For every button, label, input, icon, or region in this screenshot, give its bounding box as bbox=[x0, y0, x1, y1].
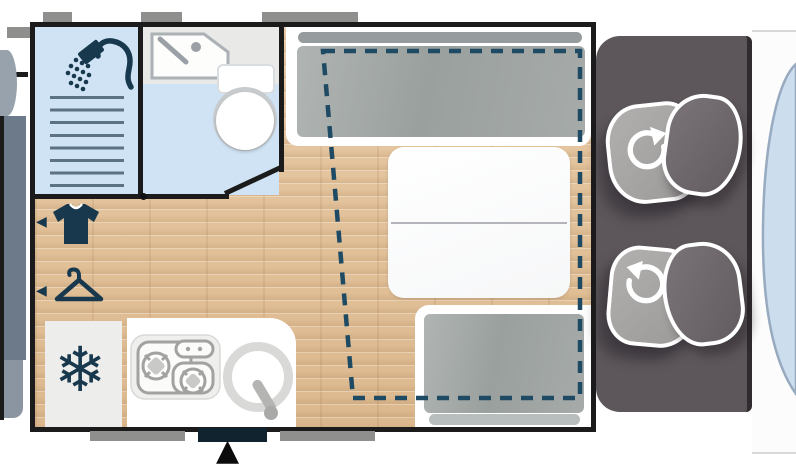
windshield bbox=[752, 30, 796, 450]
rear-bench-footer bbox=[429, 414, 580, 425]
shower-icon bbox=[58, 32, 138, 102]
window-tab bbox=[280, 431, 375, 441]
entry-arrow-icon: ▲ bbox=[216, 436, 239, 466]
adjacent-window-tab bbox=[7, 27, 30, 38]
rear-bench-cushion bbox=[424, 314, 584, 413]
adjacent-bed-foot bbox=[4, 360, 23, 418]
wardrobe-arrow-icon: ◀ bbox=[36, 284, 47, 298]
snowflake-icon: ❄ bbox=[54, 336, 106, 404]
window-tab bbox=[90, 431, 185, 441]
bathroom-door-pivot bbox=[140, 193, 147, 200]
front-bench-headrest bbox=[298, 32, 582, 43]
hanger-icon bbox=[54, 266, 104, 306]
cab bbox=[596, 36, 752, 412]
adjacent-bed-mattress bbox=[4, 116, 26, 360]
shower-drain-lines bbox=[50, 96, 124, 188]
window-tab bbox=[43, 12, 72, 22]
adjacent-bed-pillow bbox=[0, 50, 17, 116]
wardrobe-arrow-icon: ◀ bbox=[36, 215, 47, 229]
bathroom-divider-wall bbox=[138, 27, 143, 199]
toilet bbox=[216, 92, 274, 150]
floorplan-canvas: ◀ ◀ ❄ bbox=[0, 0, 796, 466]
rotate-arrow-icon bbox=[621, 123, 673, 175]
table-fold-line bbox=[391, 222, 567, 224]
window-tab bbox=[262, 12, 358, 22]
tshirt-icon bbox=[52, 203, 100, 245]
bathroom-bottom-wall bbox=[30, 194, 229, 199]
bathroom-right-wall bbox=[279, 22, 284, 172]
window-tab bbox=[141, 12, 182, 22]
kitchen-sink-icon bbox=[223, 342, 293, 412]
stove-icon bbox=[128, 330, 224, 404]
front-bench-cushion bbox=[297, 46, 585, 137]
faucet-knob bbox=[264, 406, 278, 420]
rotate-arrow-icon bbox=[620, 257, 672, 309]
